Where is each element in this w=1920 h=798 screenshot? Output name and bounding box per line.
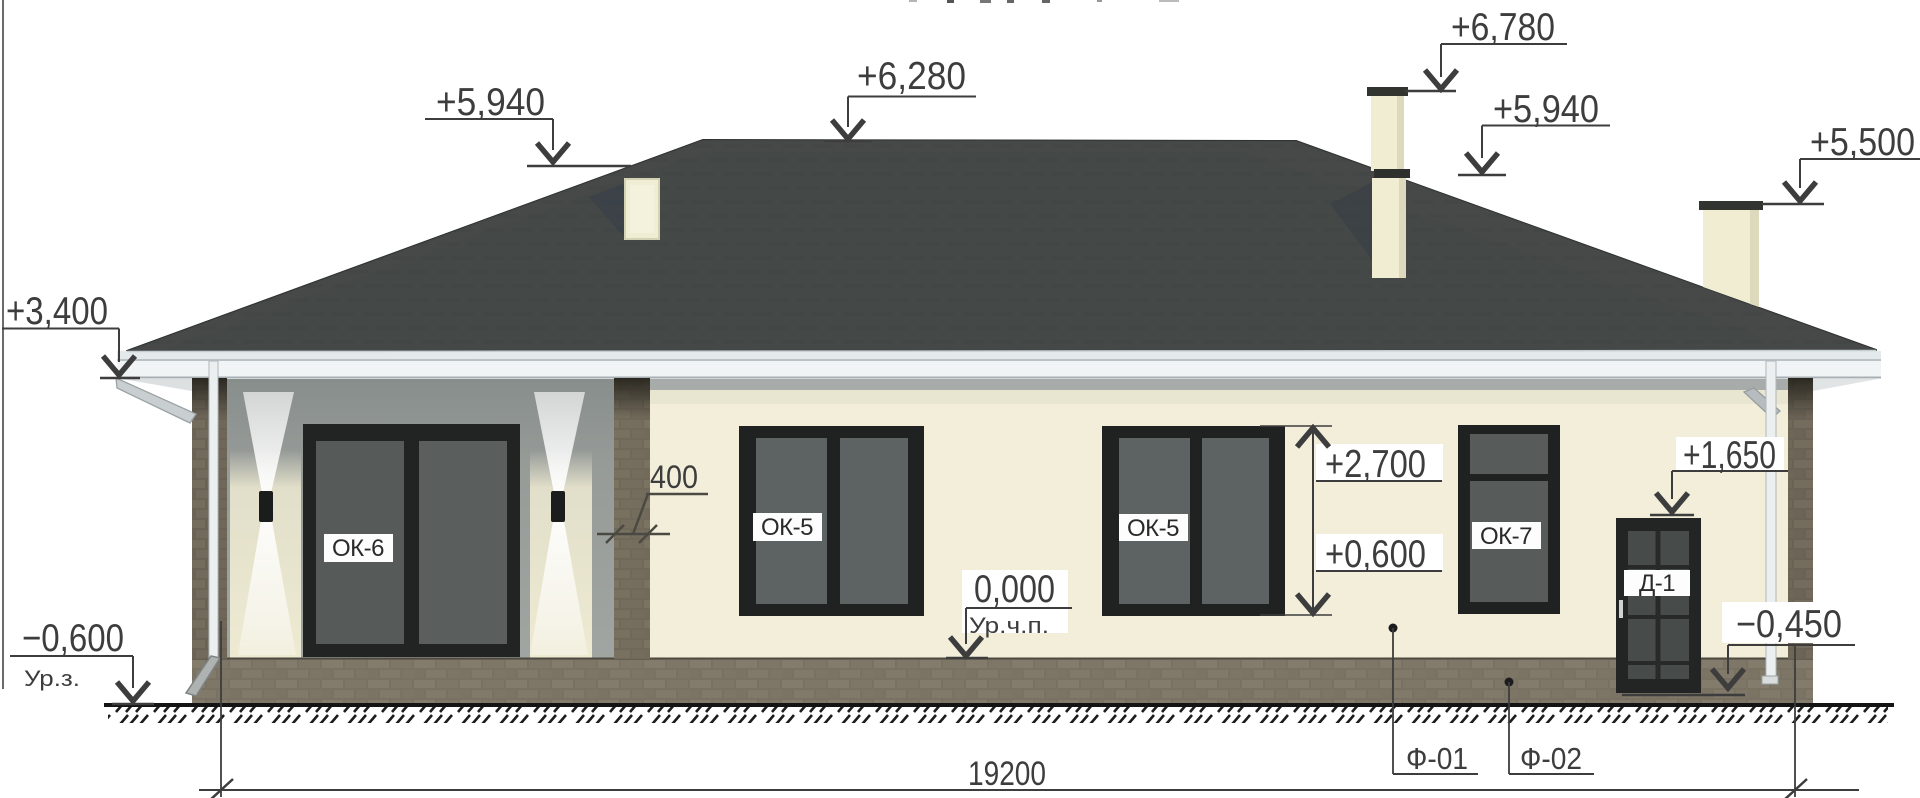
svg-text:+3,400: +3,400 — [6, 290, 108, 333]
svg-text:+1,650: +1,650 — [1683, 434, 1776, 477]
svg-text:ОК-6: ОК-6 — [332, 535, 384, 562]
svg-text:Ур.з.: Ур.з. — [24, 666, 80, 691]
svg-text:400: 400 — [650, 459, 698, 495]
svg-text:+5,500: +5,500 — [1810, 121, 1915, 164]
svg-text:ОК-5: ОК-5 — [761, 514, 813, 541]
svg-text:+2,700: +2,700 — [1325, 443, 1426, 486]
svg-text:0,000: 0,000 — [974, 568, 1055, 611]
svg-text:ОК-7: ОК-7 — [1480, 523, 1532, 550]
svg-text:−0,450: −0,450 — [1736, 603, 1842, 646]
svg-text:−0,600: −0,600 — [22, 617, 124, 660]
svg-text:Д-1: Д-1 — [1639, 570, 1675, 597]
svg-text:+5,940: +5,940 — [436, 81, 545, 124]
svg-text:Ф-01: Ф-01 — [1406, 741, 1468, 776]
svg-text:+5,940: +5,940 — [1493, 88, 1599, 131]
svg-text:Ф-02: Ф-02 — [1520, 741, 1582, 776]
svg-text:Ур.ч.п.: Ур.ч.п. — [969, 613, 1049, 638]
svg-text:+6,280: +6,280 — [857, 55, 966, 98]
svg-text:19200: 19200 — [968, 755, 1046, 793]
svg-text:+0,600: +0,600 — [1325, 533, 1426, 576]
svg-text:+6,780: +6,780 — [1451, 6, 1555, 49]
svg-text:ОК-5: ОК-5 — [1127, 515, 1179, 542]
